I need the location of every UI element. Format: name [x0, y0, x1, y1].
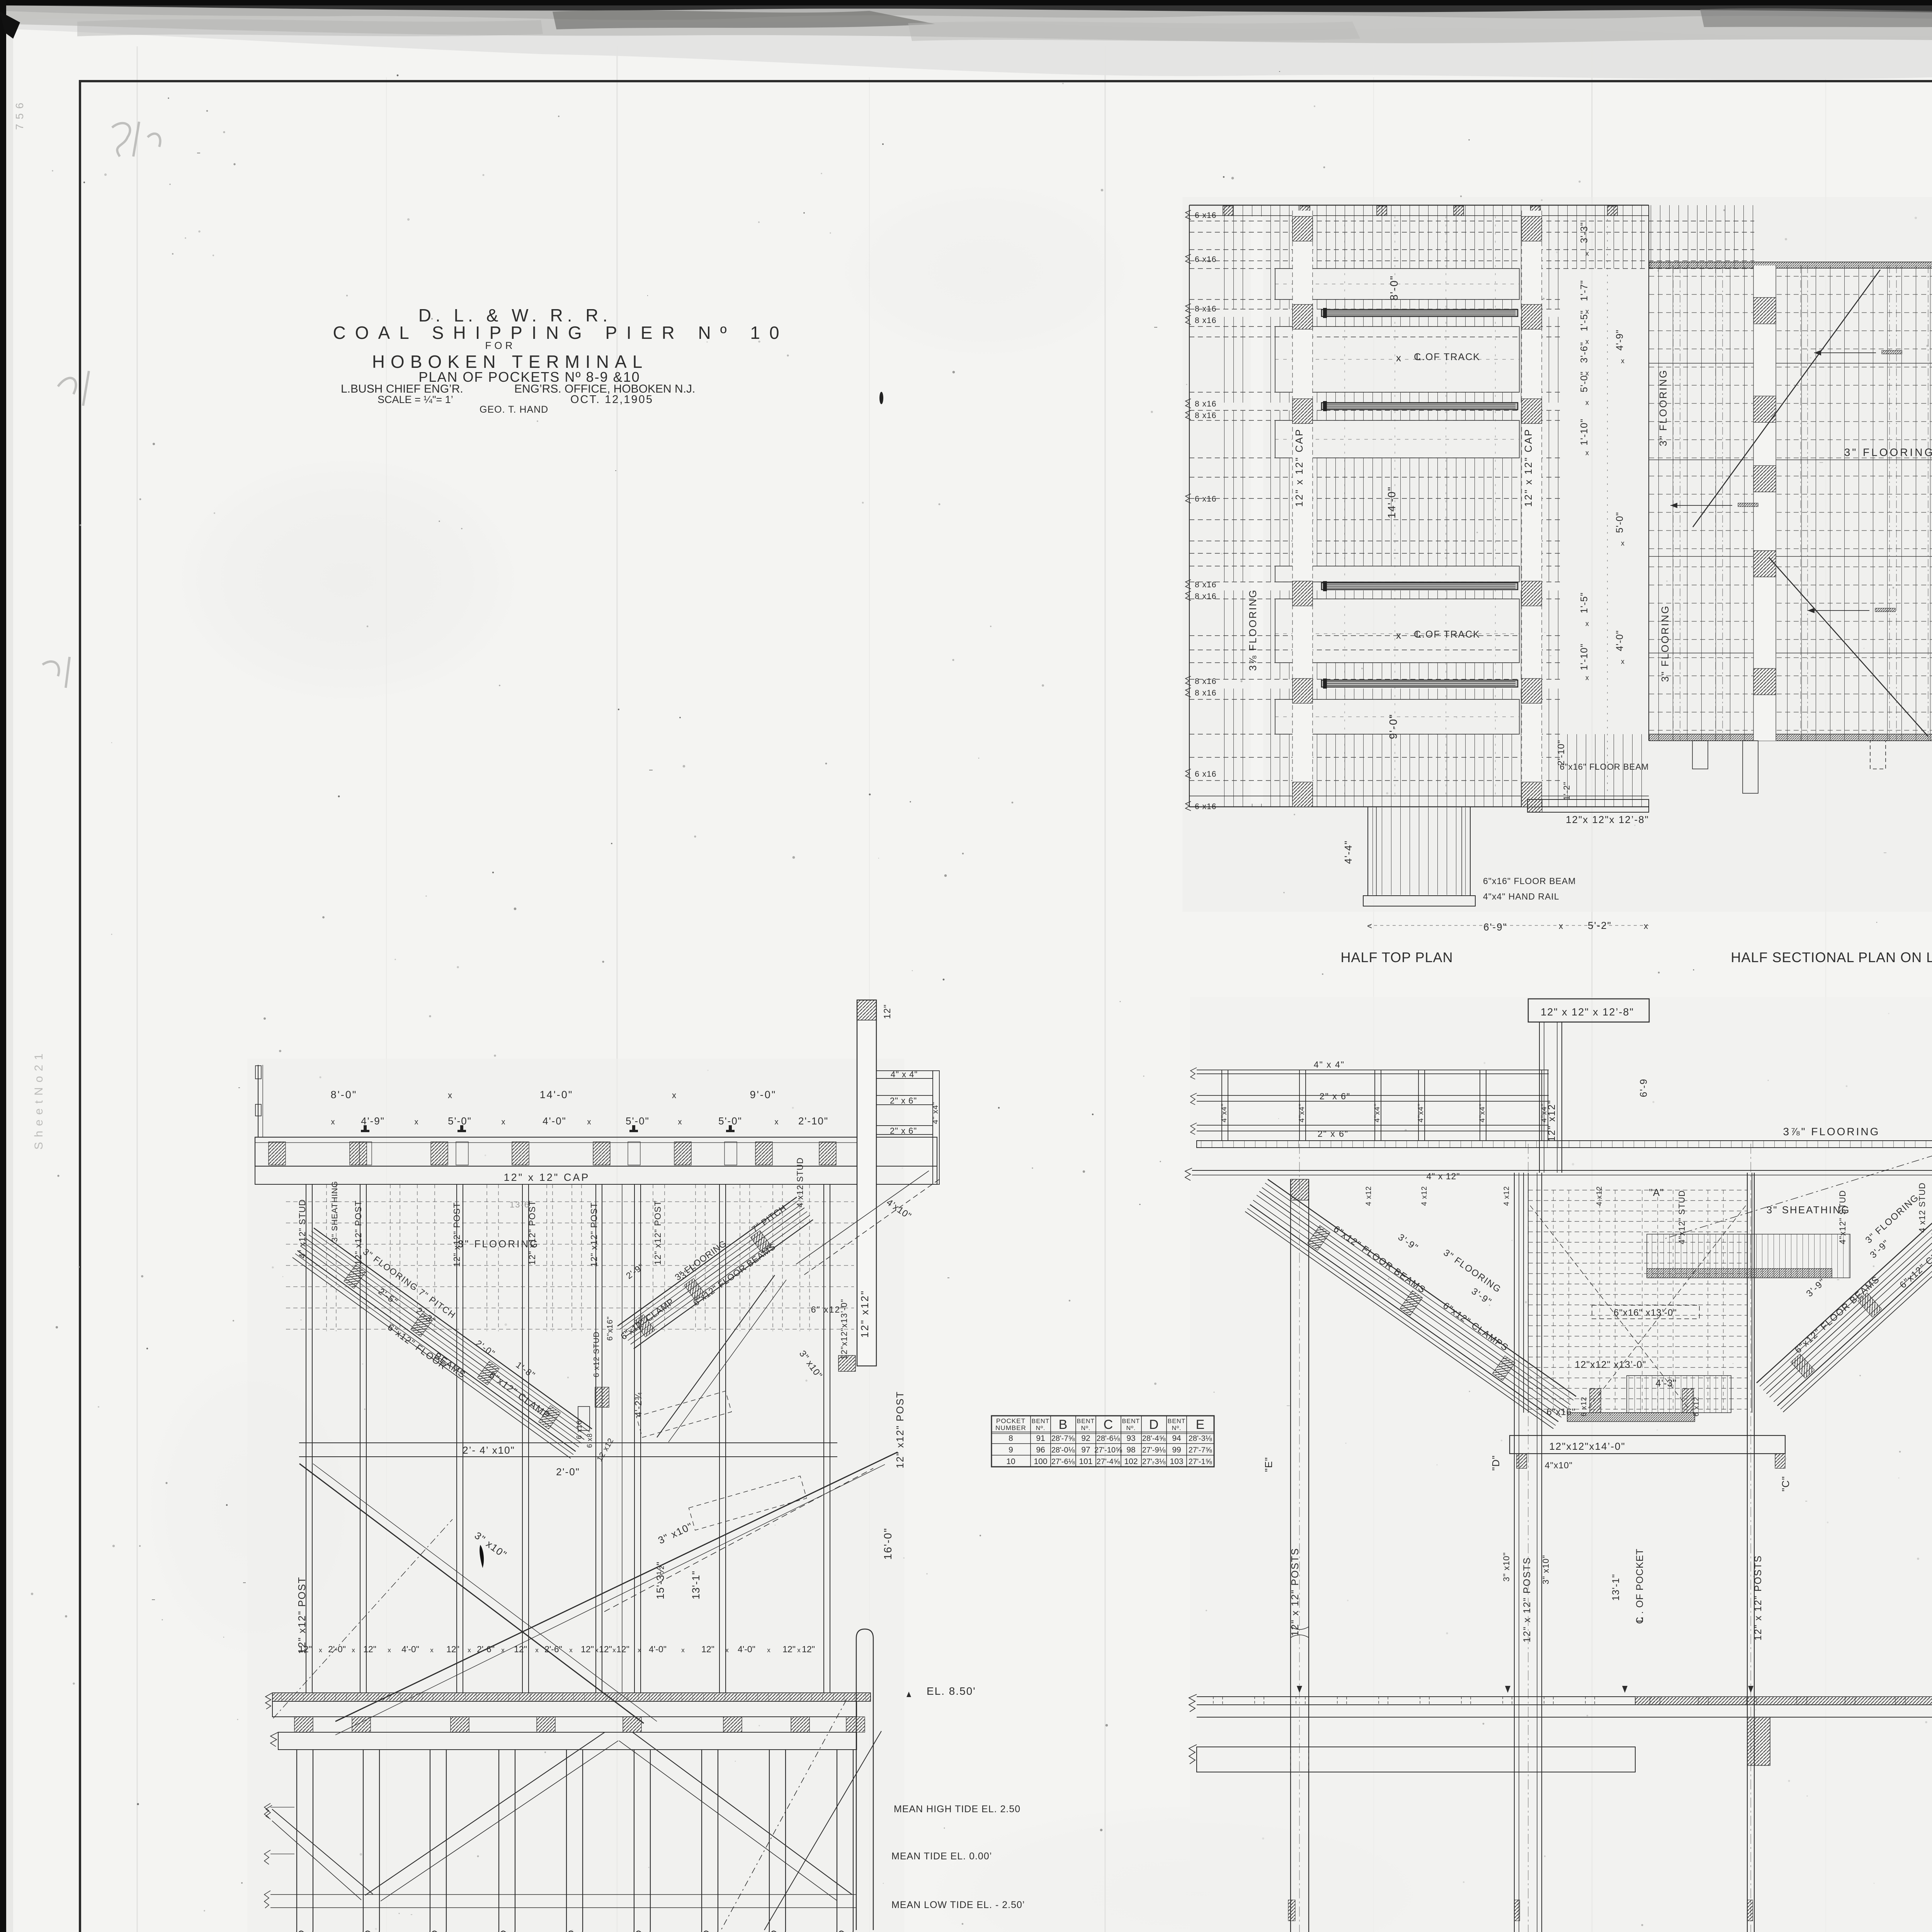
svg-text:EL. 8.50': EL. 8.50' — [927, 1685, 976, 1697]
svg-text:x: x — [678, 1118, 682, 1126]
svg-text:5'-0": 5'-0" — [626, 1115, 650, 1127]
svg-text:x: x — [725, 1646, 729, 1654]
svg-text:27'-9⅛: 27'-9⅛ — [1142, 1446, 1166, 1454]
svg-text:4"x4" HAND RAIL: 4"x4" HAND RAIL — [1483, 891, 1560, 901]
svg-text:x: x — [319, 1646, 323, 1654]
svg-text:x: x — [1621, 539, 1625, 547]
svg-text:3'-6": 3'-6" — [1579, 342, 1590, 363]
svg-text:x: x — [1585, 674, 1589, 682]
svg-text:5'-0": 5'-0" — [718, 1115, 742, 1127]
svg-text:96: 96 — [1036, 1446, 1045, 1454]
svg-text:27'-3⅛: 27'-3⅛ — [1142, 1458, 1166, 1466]
svg-text:x: x — [638, 1646, 641, 1654]
svg-text:28'-0⅛: 28'-0⅛ — [1051, 1446, 1075, 1454]
svg-text:93: 93 — [1126, 1434, 1135, 1443]
svg-text:8'-0": 8'-0" — [1388, 275, 1400, 301]
svg-text:6 x12: 6 x12 — [1580, 1396, 1588, 1416]
svg-text:x: x — [681, 1646, 685, 1654]
svg-text:4 x12 STUD: 4 x12 STUD — [1917, 1182, 1927, 1233]
svg-text:4" x 12": 4" x 12" — [1427, 1171, 1460, 1181]
svg-text:x: x — [535, 1646, 539, 1654]
svg-text:3" FLOORING: 3" FLOORING — [1844, 446, 1932, 458]
svg-text:6 x16: 6 x16 — [575, 1420, 583, 1439]
svg-text:6 x12 STUD: 6 x12 STUD — [592, 1332, 601, 1378]
svg-text:12": 12" — [701, 1644, 714, 1654]
svg-text:4"x4": 4"x4" — [1417, 1103, 1425, 1122]
svg-text:4'-0": 4'-0" — [401, 1644, 419, 1654]
svg-text:1'-7": 1'-7" — [1579, 280, 1590, 301]
svg-text:2’- 4’ x10": 2’- 4’ x10" — [463, 1444, 515, 1456]
svg-text:3" FLOORING: 3" FLOORING — [1657, 369, 1669, 446]
svg-text:12" x 12" CAP: 12" x 12" CAP — [504, 1172, 590, 1183]
svg-text:102: 102 — [1124, 1457, 1138, 1466]
svg-text:POCKET: POCKET — [996, 1417, 1026, 1425]
svg-text:4'-0": 4'-0" — [649, 1644, 667, 1654]
svg-text:Nº.: Nº. — [1081, 1425, 1091, 1432]
svg-text:12" x12" POST: 12" x12" POST — [452, 1202, 462, 1267]
svg-text:15'-3½": 15'-3½" — [655, 1561, 666, 1599]
svg-text:28'-6⅛: 28'-6⅛ — [1097, 1434, 1120, 1443]
svg-text:BENT: BENT — [1032, 1418, 1050, 1425]
svg-text:4"x4": 4"x4" — [1540, 1103, 1548, 1122]
svg-text:94: 94 — [1172, 1434, 1181, 1443]
svg-text:B: B — [1059, 1417, 1068, 1432]
svg-text:x: x — [1585, 399, 1589, 406]
svg-text:Nº.: Nº. — [1172, 1425, 1182, 1432]
svg-text:16'-0": 16'-0" — [882, 1527, 894, 1560]
svg-text:3" FLOORING: 3" FLOORING — [1659, 605, 1671, 682]
svg-text:27'-7⅝: 27'-7⅝ — [1189, 1446, 1212, 1454]
svg-text:MEAN LOW TIDE EL. - 2.50’: MEAN LOW TIDE EL. - 2.50’ — [891, 1900, 1025, 1910]
svg-text:12": 12" — [363, 1644, 376, 1654]
svg-text:99: 99 — [1172, 1446, 1181, 1454]
svg-text:9: 9 — [1009, 1446, 1013, 1454]
svg-text:92: 92 — [1081, 1434, 1090, 1443]
svg-text:14'-0": 14'-0" — [1386, 486, 1398, 518]
svg-text:12" x12" POST: 12" x12" POST — [353, 1200, 363, 1265]
svg-text:MEAN HIGH TIDE EL. 2.50: MEAN HIGH TIDE EL. 2.50 — [894, 1804, 1020, 1815]
svg-text:12": 12" — [599, 1644, 612, 1654]
svg-text:6 x16: 6 x16 — [1195, 495, 1216, 503]
svg-text:BENT: BENT — [1122, 1418, 1140, 1425]
svg-text:SCALE = ¼"= 1’: SCALE = ¼"= 1’ — [378, 394, 453, 405]
svg-text:5'-2": 5'-2" — [1588, 920, 1612, 931]
svg-text:8 x16: 8 x16 — [1195, 316, 1216, 325]
svg-text:4" x4": 4" x4" — [931, 1102, 940, 1124]
svg-text:S h e e t N o 2 1: S h e e t N o 2 1 — [32, 1053, 45, 1150]
svg-text:Nº.: Nº. — [1036, 1425, 1046, 1432]
svg-text:x: x — [1585, 250, 1589, 257]
svg-text:3⅞" FLOORING: 3⅞" FLOORING — [1783, 1126, 1880, 1138]
svg-text:12" x12" POST: 12" x12" POST — [527, 1200, 537, 1265]
svg-text:12": 12" — [299, 1644, 312, 1654]
svg-text:2'-10": 2'-10" — [798, 1115, 828, 1127]
svg-text:6"x16" FLOOR BEAM: 6"x16" FLOOR BEAM — [1560, 762, 1649, 772]
svg-text:2'-6": 2'-6" — [544, 1644, 562, 1654]
svg-text:12" x 12" x 12’-8": 12" x 12" x 12’-8" — [1541, 1006, 1634, 1018]
svg-text:D: D — [1149, 1417, 1159, 1432]
svg-text:12": 12" — [882, 1004, 893, 1019]
svg-text:1'-10": 1'-10" — [1579, 418, 1590, 446]
svg-text:Nº.: Nº. — [1126, 1425, 1136, 1432]
svg-text:7 5 6: 7 5 6 — [14, 102, 26, 130]
svg-text:4"x4": 4"x4" — [1478, 1103, 1486, 1122]
svg-text:27'-1⅝: 27'-1⅝ — [1189, 1458, 1212, 1466]
svg-text:12" x12" POST: 12" x12" POST — [589, 1202, 599, 1267]
svg-text:4'-9": 4'-9" — [361, 1115, 385, 1127]
svg-text:4 x12: 4 x12 — [1420, 1186, 1429, 1206]
svg-text:8: 8 — [1009, 1434, 1013, 1443]
svg-text:12" x 12" CAP: 12" x 12" CAP — [1293, 428, 1305, 507]
svg-text:12"x 12"x 12’-8": 12"x 12"x 12’-8" — [1566, 814, 1649, 825]
svg-text:2" x 6": 2" x 6" — [1320, 1091, 1350, 1101]
svg-text:28'-3⅛: 28'-3⅛ — [1189, 1434, 1212, 1443]
svg-text:"A": "A" — [1649, 1187, 1664, 1198]
svg-text:x: x — [448, 1090, 452, 1100]
svg-text:12" x12" POST: 12" x12" POST — [894, 1391, 906, 1469]
svg-text:4'-3": 4'-3" — [1656, 1378, 1677, 1389]
svg-text:12" x 12" POSTS: 12" x 12" POSTS — [1522, 1557, 1532, 1642]
svg-text:12": 12" — [616, 1644, 629, 1654]
svg-text:CL.OF TRACK: CL.OF TRACK — [1414, 629, 1480, 640]
svg-text:103: 103 — [1170, 1457, 1183, 1466]
svg-text:4'-0": 4'-0" — [543, 1115, 566, 1127]
svg-text:6 x16: 6 x16 — [1195, 255, 1216, 264]
svg-text:3" SHEATHING: 3" SHEATHING — [330, 1181, 339, 1242]
svg-text:8 x16: 8 x16 — [1195, 677, 1216, 686]
svg-text:x: x — [501, 1646, 505, 1654]
svg-text:6 x16: 6 x16 — [1195, 211, 1216, 220]
svg-text:GEO. T. HAND: GEO. T. HAND — [480, 404, 548, 415]
svg-text:x: x — [569, 1646, 573, 1654]
svg-text:OCT. 12,1905: OCT. 12,1905 — [570, 393, 653, 406]
svg-text:x: x — [468, 1646, 471, 1654]
svg-text:4'-9": 4'-9" — [1614, 330, 1625, 351]
svg-text:x: x — [388, 1646, 391, 1654]
svg-text:4"x4": 4"x4" — [1298, 1103, 1306, 1122]
svg-text:x: x — [797, 1646, 801, 1654]
svg-text:6"x16" FLOOR BEAM: 6"x16" FLOOR BEAM — [1483, 876, 1576, 886]
svg-text:8 x16: 8 x16 — [1195, 689, 1216, 697]
svg-text:"D": "D" — [1490, 1455, 1502, 1471]
svg-text:6'-9: 6'-9 — [1638, 1078, 1649, 1097]
svg-text:x: x — [1585, 449, 1589, 457]
svg-text:x: x — [1644, 921, 1648, 931]
svg-text:1'-10": 1'-10" — [1579, 643, 1590, 670]
svg-text:FOR: FOR — [485, 340, 516, 351]
svg-text:9'-0": 9'-0" — [1387, 714, 1399, 739]
svg-text:6"x16" x13’-0": 6"x16" x13’-0" — [1614, 1308, 1677, 1318]
svg-text:12" x 12" CAP: 12" x 12" CAP — [1522, 428, 1534, 507]
svg-text:8 x16: 8 x16 — [1195, 580, 1216, 589]
svg-text:x: x — [1585, 620, 1589, 628]
svg-text:x: x — [430, 1646, 434, 1654]
svg-text:2" x 6": 2" x 6" — [890, 1096, 917, 1105]
svg-text:2" x 6": 2" x 6" — [1318, 1129, 1349, 1139]
svg-text:12": 12" — [514, 1644, 527, 1654]
svg-text:6 x16: 6 x16 — [1195, 802, 1216, 811]
svg-text:12"x12"x14’-0": 12"x12"x14’-0" — [1549, 1440, 1625, 1452]
svg-text:<: < — [1367, 921, 1372, 931]
svg-text:4 x12: 4 x12 — [1365, 1186, 1373, 1206]
svg-text:13'-1": 13'-1" — [690, 1571, 702, 1600]
svg-text:5'-0": 5'-0" — [1614, 512, 1625, 533]
svg-text:2'-6": 2'-6" — [477, 1644, 495, 1654]
svg-text:"C": "C" — [1780, 1476, 1791, 1492]
svg-text:2" x 6": 2" x 6" — [890, 1126, 917, 1136]
svg-text:x: x — [587, 1118, 592, 1126]
svg-text:MEAN TIDE EL. 0.00’: MEAN TIDE EL. 0.00’ — [891, 1851, 992, 1862]
svg-text:101: 101 — [1079, 1457, 1092, 1466]
svg-text:98: 98 — [1126, 1446, 1135, 1454]
svg-text:27'-6⅛: 27'-6⅛ — [1051, 1458, 1075, 1466]
svg-text:4'-0": 4'-0" — [1614, 630, 1625, 651]
svg-text:"E": "E" — [1263, 1457, 1274, 1472]
svg-text:9'-0": 9'-0" — [750, 1089, 777, 1100]
svg-text:12" x12" POST: 12" x12" POST — [653, 1200, 663, 1265]
svg-text:x: x — [672, 1090, 677, 1100]
svg-text:3⅞ FLOORING: 3⅞ FLOORING — [1247, 589, 1259, 671]
svg-text:12" x 12" POSTS: 12" x 12" POSTS — [1289, 1548, 1301, 1636]
svg-text:4" x 4": 4" x 4" — [891, 1070, 918, 1079]
svg-text:3" x10": 3" x10" — [1502, 1552, 1511, 1582]
svg-text:6'-9": 6'-9" — [1483, 921, 1507, 933]
svg-text:12" x12": 12" x12" — [859, 1290, 871, 1338]
svg-text:13-6: 13-6 — [510, 1200, 530, 1209]
svg-text:5'-0": 5'-0" — [1579, 371, 1590, 393]
svg-text:12"x12" x13’-0": 12"x12" x13’-0" — [1575, 1359, 1646, 1370]
svg-text:CL.OF TRACK: CL.OF TRACK — [1414, 352, 1480, 362]
svg-text:4 x12: 4 x12 — [1503, 1186, 1511, 1206]
svg-text:1'-5": 1'-5" — [1579, 592, 1590, 614]
svg-text:12": 12" — [802, 1644, 815, 1654]
svg-text:12" x 12" POSTS: 12" x 12" POSTS — [1753, 1555, 1764, 1640]
svg-text:NUMBER: NUMBER — [995, 1424, 1026, 1432]
svg-text:8 x16: 8 x16 — [1195, 411, 1216, 420]
svg-text:6" x12": 6" x12" — [811, 1304, 845, 1315]
svg-text:1'-2": 1'-2" — [1562, 782, 1571, 801]
svg-text:14'-0": 14'-0" — [540, 1089, 573, 1100]
svg-text:1'-5": 1'-5" — [1579, 310, 1590, 332]
svg-text:BENT: BENT — [1168, 1418, 1186, 1425]
svg-text:3" FLOORING: 3" FLOORING — [458, 1238, 539, 1250]
svg-text:CL . OF POCKET: CL . OF POCKET — [1634, 1548, 1645, 1624]
svg-text:x: x — [775, 1118, 779, 1126]
svg-text:91: 91 — [1036, 1434, 1045, 1443]
svg-text:100: 100 — [1034, 1457, 1047, 1466]
svg-text:4"x10": 4"x10" — [1545, 1460, 1573, 1470]
svg-text:28'-7⅝: 28'-7⅝ — [1051, 1434, 1075, 1443]
svg-text:3" x10": 3" x10" — [1541, 1555, 1551, 1584]
svg-text:4" x 4": 4" x 4" — [1314, 1060, 1345, 1070]
svg-text:4 x12: 4 x12 — [1595, 1186, 1604, 1206]
svg-text:97: 97 — [1081, 1446, 1090, 1454]
svg-text:BENT: BENT — [1077, 1418, 1095, 1425]
svg-text:HALF SECTIONAL PLAN ON LINE "A: HALF SECTIONAL PLAN ON LINE "A" A" — [1731, 949, 1932, 965]
svg-text:12": 12" — [581, 1644, 594, 1654]
svg-text:10: 10 — [1006, 1457, 1015, 1466]
svg-text:12": 12" — [782, 1644, 796, 1654]
svg-text:x: x — [502, 1118, 506, 1126]
svg-text:4"x4": 4"x4" — [1220, 1103, 1228, 1122]
svg-text:x: x — [352, 1646, 355, 1654]
svg-text:x: x — [612, 1646, 616, 1654]
svg-text:C: C — [1104, 1417, 1113, 1432]
svg-text:E: E — [1196, 1417, 1205, 1432]
svg-text:x: x — [767, 1646, 771, 1654]
svg-text:6"x16": 6"x16" — [1546, 1407, 1575, 1417]
svg-text:COAL SHIPPING PIER Nº 10: COAL SHIPPING PIER Nº 10 — [333, 323, 788, 343]
svg-text:27'-10⅝: 27'-10⅝ — [1094, 1446, 1122, 1454]
svg-text:28'-4⅝: 28'-4⅝ — [1142, 1434, 1166, 1443]
svg-text:8 x16: 8 x16 — [1195, 304, 1216, 313]
svg-text:x: x — [1621, 357, 1625, 365]
svg-text:4"x4": 4"x4" — [1373, 1103, 1381, 1122]
svg-text:4'-0": 4'-0" — [738, 1644, 755, 1654]
svg-text:6 x16: 6 x16 — [1195, 770, 1216, 779]
svg-text:4'-2¾: 4'-2¾ — [633, 1392, 644, 1417]
svg-text:6 x12: 6 x12 — [1692, 1396, 1701, 1416]
svg-text:x: x — [1396, 352, 1401, 364]
svg-text:2'-0": 2'-0" — [556, 1466, 580, 1478]
svg-text:12": 12" — [446, 1644, 459, 1654]
svg-text:3" SHEATHING: 3" SHEATHING — [1767, 1204, 1850, 1216]
svg-text:x: x — [415, 1118, 419, 1126]
svg-text:HALF TOP PLAN: HALF TOP PLAN — [1340, 949, 1453, 965]
svg-text:13'-1": 13'-1" — [1611, 1574, 1621, 1601]
svg-text:x: x — [331, 1118, 335, 1126]
svg-text:27'-4⅝: 27'-4⅝ — [1097, 1458, 1120, 1466]
svg-text:3'-3": 3'-3" — [1579, 222, 1590, 243]
svg-text:8 x16: 8 x16 — [1195, 400, 1216, 408]
svg-text:8'-0": 8'-0" — [331, 1089, 357, 1100]
svg-text:12" x12" POST: 12" x12" POST — [296, 1577, 308, 1654]
svg-text:8 x16: 8 x16 — [1195, 592, 1216, 601]
svg-text:5'-0": 5'-0" — [448, 1115, 472, 1127]
svg-text:2'-0": 2'-0" — [328, 1644, 346, 1654]
svg-text:x: x — [1559, 921, 1563, 931]
svg-text:x: x — [1621, 658, 1625, 665]
svg-text:x: x — [1396, 629, 1401, 641]
svg-text:6 x8: 6 x8 — [586, 1433, 594, 1448]
svg-text:x: x — [595, 1646, 599, 1654]
svg-text:6"x16": 6"x16" — [606, 1316, 614, 1341]
svg-text:4'-4": 4'-4" — [1342, 840, 1354, 864]
